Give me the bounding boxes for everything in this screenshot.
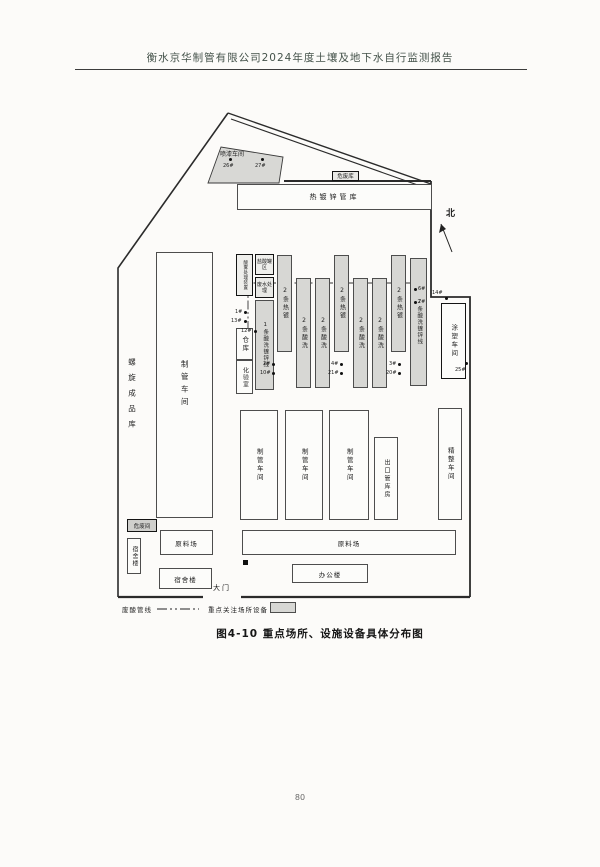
- marker-dot-14: [445, 297, 448, 300]
- marker-dot-21: [340, 372, 343, 375]
- report-page: 衡水京华制管有限公司2024年度土壤及地下水自行监测报告 北 喷漆车间 热镀锌管…: [0, 0, 600, 867]
- marker-dot-12: [254, 330, 257, 333]
- line-strip-5: 2条热镀: [334, 255, 349, 352]
- building-pipe-workshop-1: 制管车间: [240, 410, 278, 520]
- marker-label-1: 1#: [235, 310, 242, 315]
- marker-label-14: 14#: [432, 291, 443, 296]
- building-lab: 化验室: [236, 360, 253, 394]
- marker-label-13: 13#: [231, 319, 242, 324]
- building-export-pipe-warehouse: 出口管库房: [374, 437, 398, 520]
- building-finishing-workshop: 精整车间: [438, 408, 462, 520]
- marker-label-3: 3#: [389, 362, 396, 367]
- marker-dot-6: [414, 288, 417, 291]
- header-rule: [75, 69, 527, 70]
- building-office: 办公楼: [292, 564, 368, 583]
- line-strip-8: 2条热镀: [391, 255, 406, 352]
- page-header-title: 衡水京华制管有限公司2024年度土壤及地下水自行监测报告: [0, 50, 600, 65]
- gate-label: 大门: [213, 583, 231, 593]
- marker-dot-10: [272, 372, 275, 375]
- building-hazardous-waste-store: 危废库: [332, 171, 359, 181]
- building-raw-material-yard-left: 原料场: [160, 530, 213, 555]
- marker-label-21: 21#: [328, 371, 339, 376]
- marker-label-6: 6#: [418, 287, 425, 292]
- marker-label-10: 10#: [260, 371, 271, 376]
- line-strip-6: 2条酸洗: [353, 278, 368, 388]
- building-dormitory-horizontal: 宿舍楼: [159, 568, 212, 589]
- marker-dot-26: [229, 158, 232, 161]
- figure-caption: 图4-10 重点场所、设施设备具体分布图: [120, 626, 520, 641]
- marker-dot-27: [261, 158, 264, 161]
- marker-label-4: 4#: [331, 362, 338, 367]
- building-acid-mist-unit: 酸雾处理装置: [236, 254, 253, 296]
- building-galvanized-pipe-warehouse: 热镀锌管库: [237, 184, 432, 210]
- line-strip-3: 2条酸洗: [296, 278, 311, 388]
- line-strip-1: 1条酸洗镀锌线: [255, 300, 274, 390]
- building-pipe-workshop-2: 制管车间: [285, 410, 323, 520]
- marker-label-25: 25#: [455, 368, 466, 373]
- marker-dot-4: [340, 363, 343, 366]
- marker-dot-20: [398, 372, 401, 375]
- marker-label-12: 12#: [241, 329, 252, 334]
- north-arrow-icon: [439, 224, 452, 252]
- marker-label-20: 20#: [386, 371, 397, 376]
- legend-pipeline-label: 废酸管线: [122, 604, 152, 614]
- marker-dot-25: [465, 362, 468, 365]
- marker-label-27: 27#: [255, 164, 266, 169]
- marker-dot-7: [414, 301, 417, 304]
- building-spiral-product-warehouse-label: 螺旋成品库: [128, 358, 136, 436]
- building-raw-material-yard-right: 原料场: [242, 530, 456, 555]
- line-strip-9: 2条酸洗镀锌线: [410, 258, 427, 386]
- building-dormitory-vertical: 宿舍楼: [127, 538, 141, 574]
- marker-label-2: 2#: [263, 362, 270, 367]
- building-paint-shop-label: 喷漆车间: [220, 149, 244, 158]
- marker-dot-2: [272, 363, 275, 366]
- page-number: 80: [0, 793, 600, 802]
- legend-key-sites-label: 重点关注场所设备: [208, 604, 268, 614]
- site-marker-square: [243, 560, 248, 565]
- building-wastewater-treatment: 废水处理: [255, 277, 274, 298]
- building-hazardous-waste-room: 危废间: [127, 519, 157, 532]
- marker-label-26: 26#: [223, 164, 234, 169]
- building-pipe-workshop-main: 制管车间: [156, 252, 213, 518]
- line-strip-7: 2条酸洗: [372, 278, 387, 388]
- legend-key-sites-swatch: [270, 602, 296, 613]
- marker-dot-13: [244, 320, 247, 323]
- building-acid-tank-area: 盐酸罐区: [255, 254, 274, 275]
- marker-label-7: 7#: [418, 300, 425, 305]
- north-label: 北: [446, 206, 455, 219]
- building-pipe-workshop-3: 制管车间: [329, 410, 369, 520]
- marker-dot-3: [398, 363, 401, 366]
- line-strip-2: 2条热镀: [277, 255, 292, 352]
- marker-dot-1: [244, 311, 247, 314]
